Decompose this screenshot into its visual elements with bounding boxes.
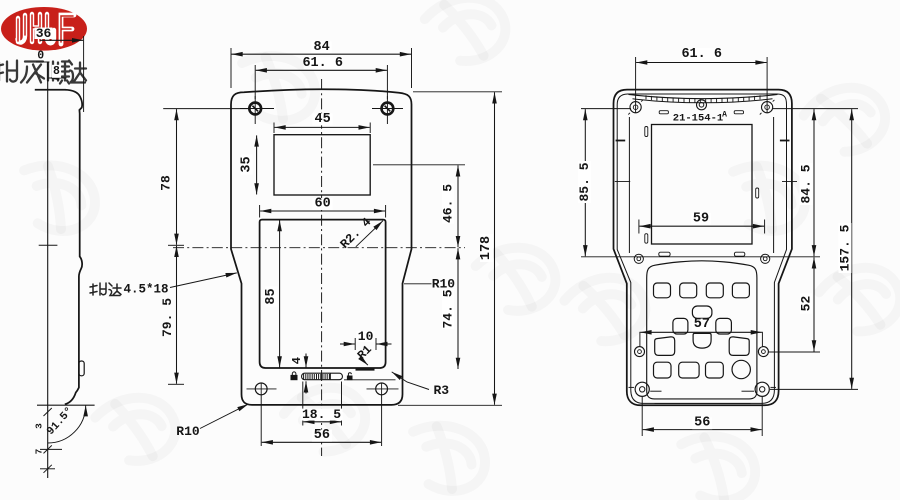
svg-text:61. 6: 61. 6 bbox=[302, 56, 343, 71]
svg-text:10: 10 bbox=[358, 329, 374, 344]
svg-text:A: A bbox=[722, 110, 727, 119]
svg-text:35: 35 bbox=[239, 156, 254, 172]
svg-text:79. 5: 79. 5 bbox=[160, 298, 175, 337]
svg-text:4: 4 bbox=[290, 357, 304, 364]
svg-text:4.5*18: 4.5*18 bbox=[124, 283, 169, 297]
svg-text:78: 78 bbox=[159, 175, 174, 191]
svg-text:74. 5: 74. 5 bbox=[441, 289, 456, 328]
svg-text:R10: R10 bbox=[432, 277, 456, 292]
svg-text:61. 6: 61. 6 bbox=[681, 47, 722, 62]
svg-text:60: 60 bbox=[314, 197, 330, 212]
svg-text:36: 36 bbox=[36, 26, 52, 41]
svg-text:157. 5: 157. 5 bbox=[838, 224, 853, 271]
svg-text:85: 85 bbox=[264, 288, 279, 304]
svg-text:46. 5: 46. 5 bbox=[441, 184, 456, 223]
svg-text:57: 57 bbox=[694, 317, 710, 332]
svg-text:84: 84 bbox=[313, 40, 329, 55]
svg-text:59: 59 bbox=[693, 211, 709, 226]
svg-text:8: 8 bbox=[53, 65, 60, 78]
svg-text:21-154-1: 21-154-1 bbox=[673, 113, 723, 125]
svg-text:56: 56 bbox=[694, 416, 710, 431]
svg-text:R10: R10 bbox=[176, 424, 200, 439]
svg-text:18. 5: 18. 5 bbox=[302, 407, 341, 422]
svg-text:84. 5: 84. 5 bbox=[799, 164, 814, 203]
svg-text:45: 45 bbox=[314, 112, 330, 127]
svg-text:52: 52 bbox=[799, 296, 814, 312]
svg-text:85. 5: 85. 5 bbox=[577, 162, 592, 201]
svg-text:56: 56 bbox=[314, 428, 330, 443]
svg-text:3: 3 bbox=[34, 423, 45, 429]
svg-text:7: 7 bbox=[34, 448, 45, 454]
svg-text:0: 0 bbox=[37, 50, 44, 63]
svg-text:178: 178 bbox=[479, 236, 494, 260]
svg-text:R3: R3 bbox=[433, 383, 449, 398]
